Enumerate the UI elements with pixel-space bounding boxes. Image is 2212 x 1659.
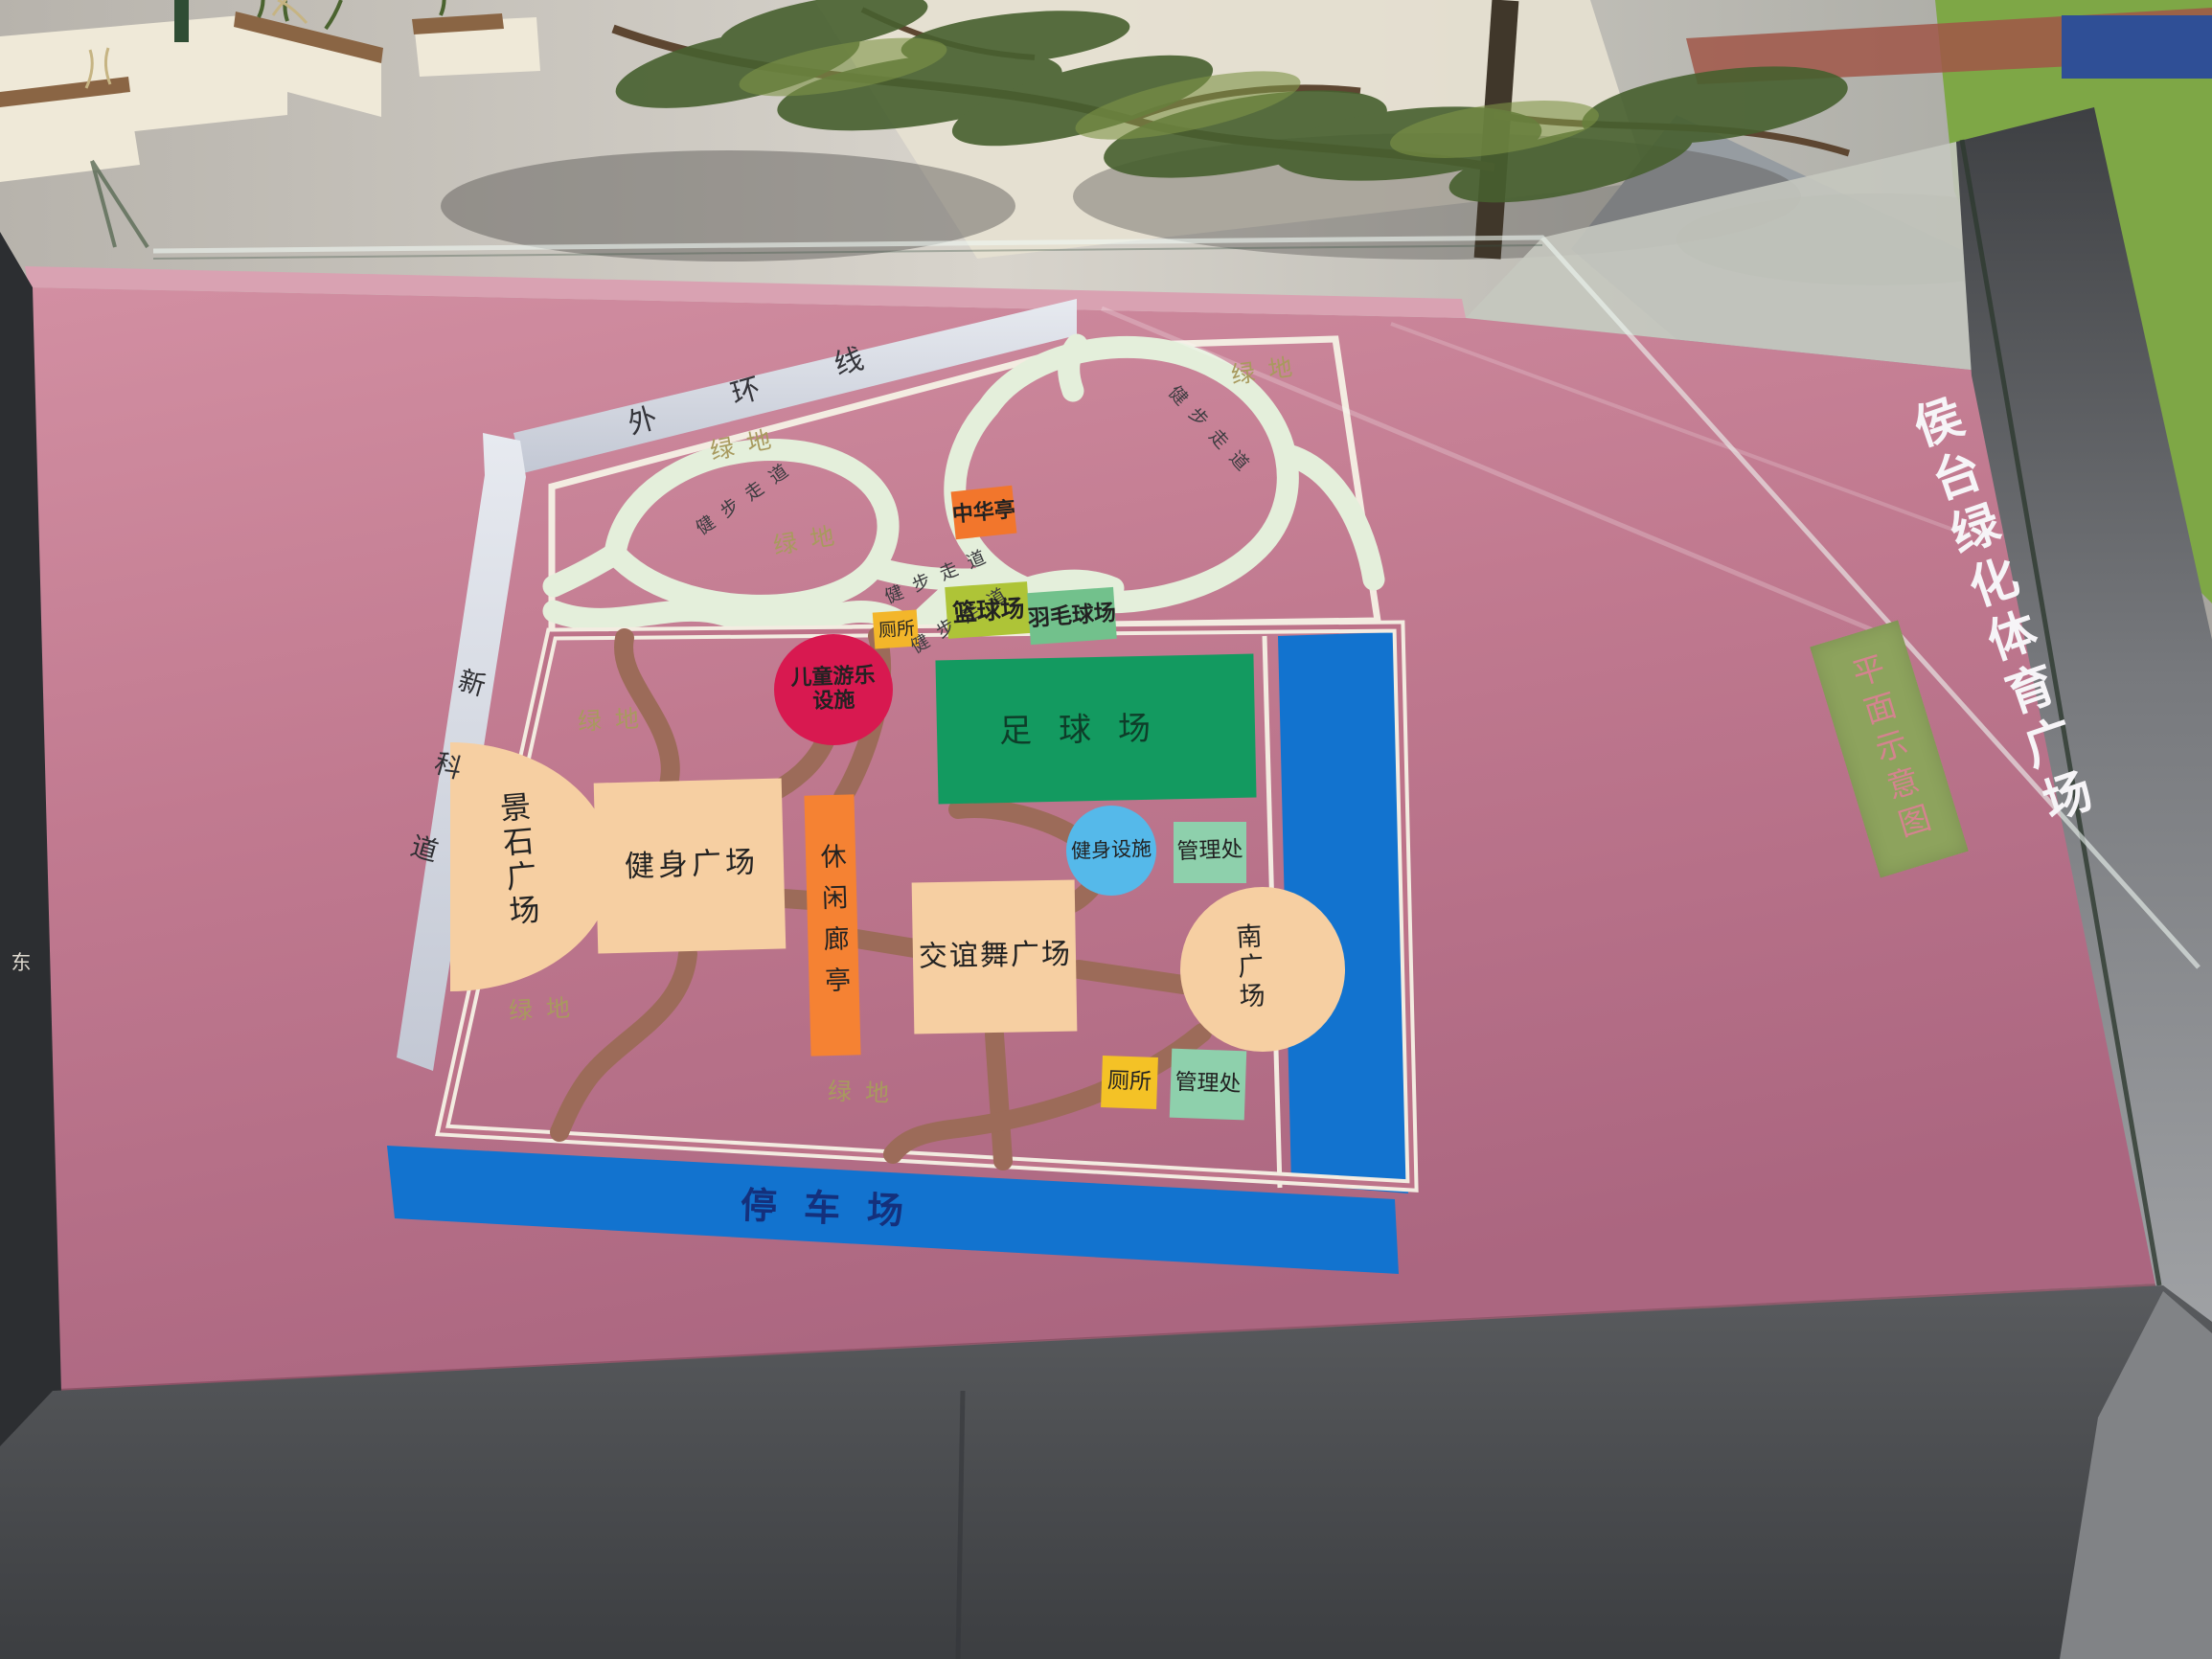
photo-of-park-map-sign: 侯台绿化体育广场 平面示意图 东 外环线 新科道 绿地 绿地 绿地 绿地 绿地 … [0,0,2212,1659]
toilet-lower-shape [1101,1056,1158,1109]
badminton-court-shape [1027,587,1117,645]
basketball-court-shape [945,581,1031,639]
scene-graphic [0,0,2212,1659]
toilet-upper-shape [873,609,920,648]
blue-fence [2062,15,2212,79]
fitness-plaza-shape [594,778,787,953]
football-field-shape [935,654,1256,805]
management-office-upper-shape [1174,822,1246,883]
zhonghua-pavilion-shape [951,486,1017,539]
management-office-lower-shape [1170,1049,1246,1121]
south-plaza-shape [1180,887,1345,1052]
kids-play-shape [774,634,893,745]
fitness-equipment-shape [1066,806,1156,896]
green-post [174,0,189,42]
leisure-corridor-shape [804,794,860,1056]
dance-plaza-shape [912,880,1078,1034]
